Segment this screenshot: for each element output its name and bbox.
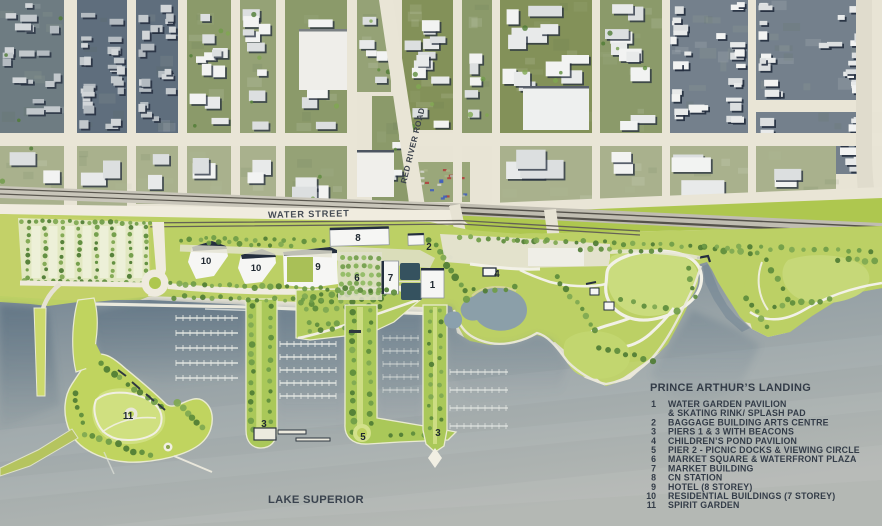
svg-text:3: 3	[435, 428, 441, 439]
svg-text:2: 2	[426, 242, 432, 253]
svg-text:10: 10	[251, 263, 262, 274]
svg-text:PRINCE ARTHUR’S LANDING: PRINCE ARTHUR’S LANDING	[650, 382, 811, 394]
svg-text:9: 9	[315, 262, 321, 273]
svg-text:10: 10	[201, 256, 212, 267]
svg-text:11: 11	[647, 500, 656, 510]
svg-text:1: 1	[430, 280, 436, 291]
svg-text:1: 1	[651, 399, 656, 409]
svg-text:4: 4	[494, 269, 500, 280]
svg-text:SPIRIT GARDEN: SPIRIT GARDEN	[668, 500, 740, 510]
svg-text:LAKE SUPERIOR: LAKE SUPERIOR	[268, 494, 364, 506]
svg-text:8: 8	[355, 233, 361, 244]
svg-text:WATER STREET: WATER STREET	[268, 208, 350, 220]
svg-text:11: 11	[123, 411, 134, 422]
svg-text:7: 7	[388, 273, 394, 284]
svg-text:5: 5	[360, 432, 366, 443]
svg-text:6: 6	[354, 273, 360, 284]
svg-text:3: 3	[261, 419, 267, 430]
